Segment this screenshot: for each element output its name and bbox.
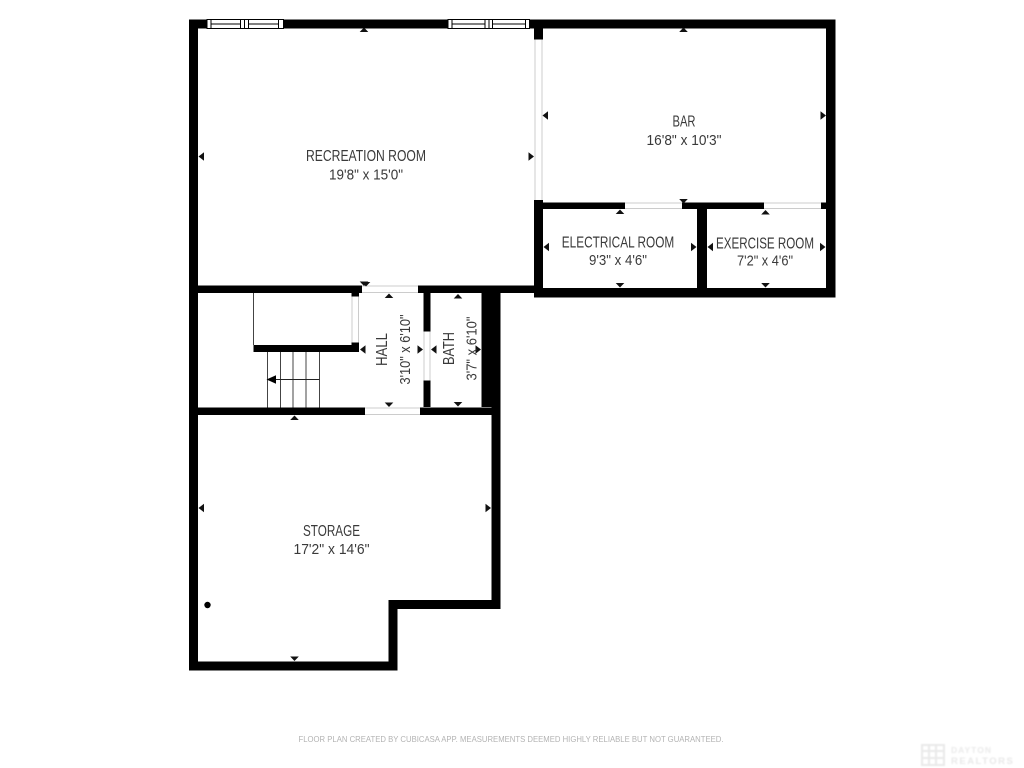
svg-text:ELECTRICAL ROOM: ELECTRICAL ROOM	[562, 235, 675, 252]
svg-text:17'2" x 14'6": 17'2" x 14'6"	[294, 541, 370, 558]
svg-text:REALTORS: REALTORS	[951, 756, 1014, 767]
svg-text:RECREATION ROOM: RECREATION ROOM	[306, 148, 426, 165]
svg-text:19'8" x 15'0": 19'8" x 15'0"	[329, 167, 403, 184]
svg-text:FLOOR PLAN CREATED BY CUBICASA: FLOOR PLAN CREATED BY CUBICASA APP. MEAS…	[299, 735, 724, 744]
svg-text:3'7" x 6'10": 3'7" x 6'10"	[464, 317, 481, 381]
svg-text:16'8" x 10'3": 16'8" x 10'3"	[647, 132, 722, 149]
svg-text:9'3" x 4'6": 9'3" x 4'6"	[589, 252, 647, 269]
svg-text:BAR: BAR	[673, 114, 696, 131]
svg-text:EXERCISE ROOM: EXERCISE ROOM	[716, 236, 814, 253]
svg-text:STORAGE: STORAGE	[303, 523, 360, 540]
svg-text:DAYTON: DAYTON	[951, 745, 992, 755]
svg-text:HALL: HALL	[374, 333, 391, 366]
svg-text:3'10" x 6'10": 3'10" x 6'10"	[397, 315, 414, 385]
svg-text:BATH: BATH	[441, 332, 458, 365]
svg-text:7'2" x 4'6": 7'2" x 4'6"	[737, 253, 793, 270]
